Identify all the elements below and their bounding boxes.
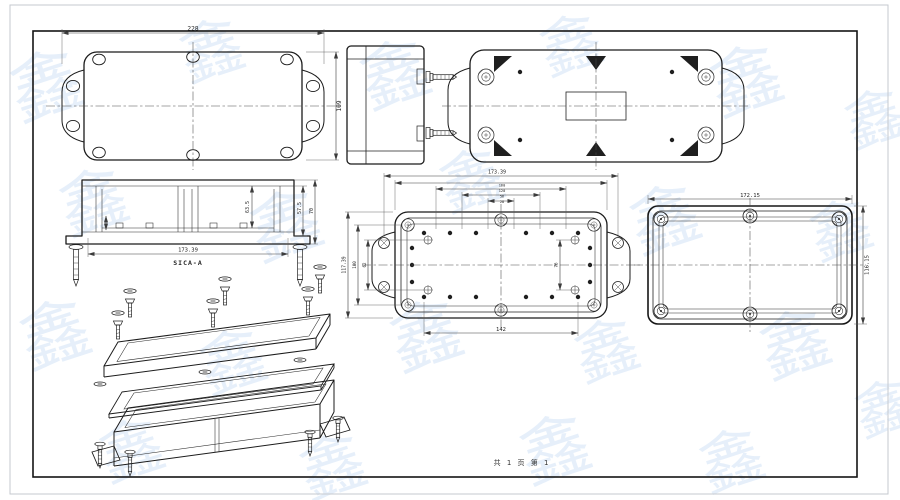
screw-boss-icon <box>402 299 414 311</box>
boss-dot-icon <box>588 280 592 284</box>
lid-screw-icon <box>207 299 219 327</box>
view-side <box>347 46 457 164</box>
cover-screw-icon <box>426 128 457 139</box>
view-bottom <box>442 42 750 170</box>
view-base-top: 228 109 <box>46 26 343 171</box>
boss-dot-icon <box>550 295 554 299</box>
dim-lid-width: 172.15 <box>740 193 760 199</box>
corner-screw-icon <box>478 127 494 143</box>
pilot-hole-icon <box>518 138 522 142</box>
boss-dot-icon <box>588 246 592 250</box>
lid-screw-hole-icon <box>832 304 846 318</box>
boss-dot-icon <box>422 231 426 235</box>
boss-dot-icon <box>474 231 478 235</box>
boss-dot-icon <box>550 231 554 235</box>
lid-screw-icon <box>314 265 326 293</box>
mount-screw-icon <box>69 245 83 286</box>
dim-stack-2: 56 <box>500 195 504 199</box>
dim-stack-0: 160 <box>499 184 506 188</box>
exploded-lid <box>104 314 330 377</box>
boss-dot-icon <box>448 295 452 299</box>
flange-hole-icon <box>613 238 624 249</box>
view-base-inner: 173.39 160 120 56 28 <box>342 170 641 337</box>
view-section: 63.5 57.5 70 173.39 SICA-A <box>66 180 318 286</box>
mount-screw-icon <box>293 245 307 286</box>
lid-screw-icon <box>302 287 314 315</box>
boss-dot-icon <box>422 295 426 299</box>
boss-dot-icon <box>524 231 528 235</box>
section-label: SICA-A <box>173 259 202 267</box>
lid-screw-icon <box>124 289 136 317</box>
dim-left-inner: 62 <box>362 262 367 268</box>
washer-icon <box>294 358 306 362</box>
boss-dot-icon <box>448 231 452 235</box>
flange-hole-icon <box>379 238 390 249</box>
dim-lid-height: 116.15 <box>865 255 871 275</box>
dim-base-width: 228 <box>187 26 198 33</box>
view-exploded <box>92 265 350 476</box>
boss-dot-icon <box>410 246 414 250</box>
standoff-hole-icon <box>570 285 580 295</box>
washer-icon <box>94 382 106 386</box>
flange-hole-icon <box>613 282 624 293</box>
lid-screw-hole-icon <box>654 212 668 226</box>
boss-dot-icon <box>474 295 478 299</box>
lid-screw-icon <box>219 277 231 305</box>
standoff-hole-icon <box>570 235 580 245</box>
screw-boss-icon <box>588 299 600 311</box>
anchor-bolt-icon <box>305 430 315 456</box>
dim-section-width: 173.39 <box>178 248 198 254</box>
dim-stack-3: 28 <box>500 200 504 204</box>
dim-inner-bottom: 142 <box>496 327 506 333</box>
boss-dot-icon <box>524 295 528 299</box>
pilot-hole-icon <box>670 70 674 74</box>
dim-stack-1: 120 <box>499 189 506 193</box>
dim-section-mid-h: 57.5 <box>297 202 303 214</box>
dim-section-total-h: 70 <box>309 208 315 214</box>
view-lid-inner: 172.15 116.15 <box>634 193 871 332</box>
lid-screw-icon <box>112 311 124 339</box>
screw-boss-icon <box>588 219 600 231</box>
washer-icon <box>199 370 211 374</box>
corner-screw-icon <box>478 69 494 85</box>
boss-dot-icon <box>410 280 414 284</box>
dim-right: 76 <box>554 262 559 268</box>
pilot-hole-icon <box>518 70 522 74</box>
flange-hole-icon <box>379 282 390 293</box>
dim-left-outer: 117.39 <box>342 256 348 273</box>
dimension-section-width: 173.39 <box>88 238 288 257</box>
drawing-sheet: 鑫 鑫 鑫 鑫 鑫 鑫 鑫 鑫 鑫 鑫 鑫 鑫 鑫 鑫 鑫 鑫 鑫 鑫 鑫 鑫 … <box>0 0 900 500</box>
dim-inner-top: 173.39 <box>488 170 506 176</box>
standoff-hole-icon <box>423 285 433 295</box>
dimension-inner-height: 63.5 <box>245 186 252 228</box>
screw-boss-icon <box>402 219 414 231</box>
boss-dot-icon <box>576 295 580 299</box>
dim-left-mid: 100 <box>352 261 357 269</box>
technical-drawing: 228 109 <box>0 0 900 500</box>
boss-dot-icon <box>576 231 580 235</box>
corner-screw-icon <box>698 127 714 143</box>
dim-section-inner-h: 63.5 <box>245 201 251 213</box>
lid-screw-hole-icon <box>654 304 668 318</box>
lid-screw-hole-icon <box>832 212 846 226</box>
pilot-hole-icon <box>670 138 674 142</box>
cover-screw-icon <box>426 72 457 83</box>
corner-screw-icon <box>698 69 714 85</box>
standoff-hole-icon <box>423 235 433 245</box>
page-footer: 共 1 页 第 1 <box>494 458 551 467</box>
dim-base-height: 109 <box>336 100 343 111</box>
dimension-mid-height: 57.5 <box>294 186 307 236</box>
